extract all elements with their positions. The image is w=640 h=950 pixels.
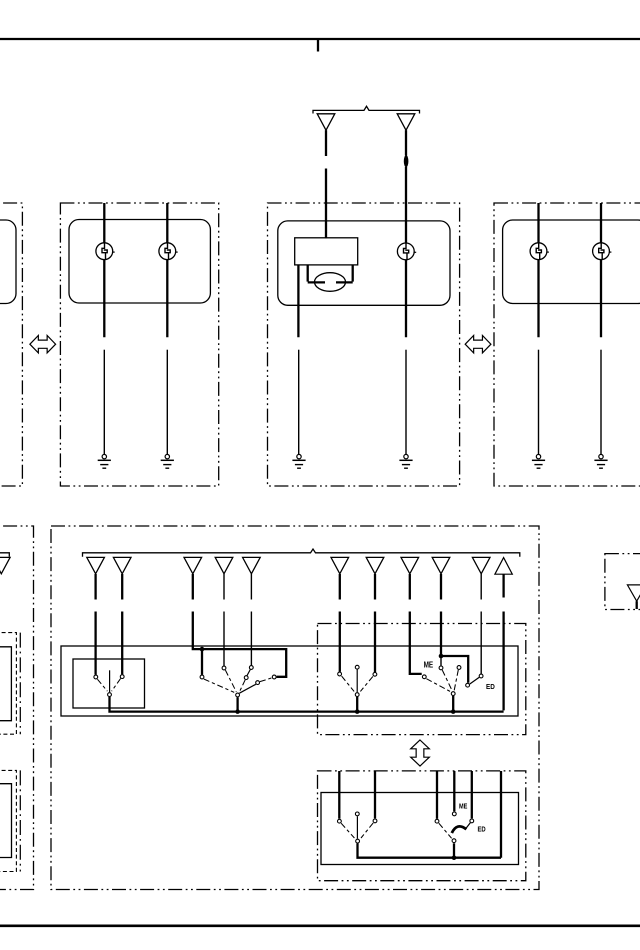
svg-text:ED: ED	[486, 682, 495, 691]
svg-text:ME: ME	[424, 659, 434, 669]
svg-text:ED: ED	[478, 824, 487, 833]
svg-text:ME: ME	[459, 802, 467, 811]
